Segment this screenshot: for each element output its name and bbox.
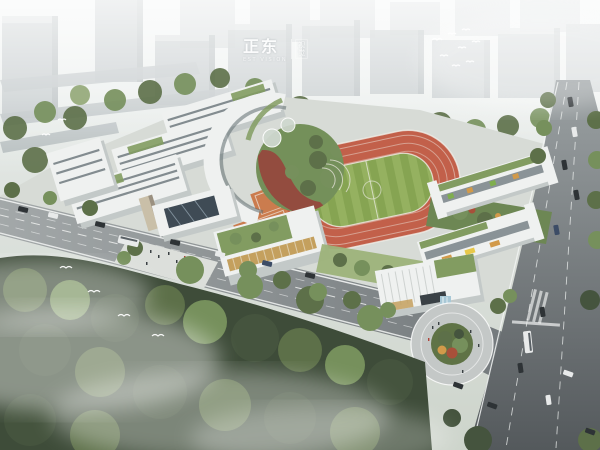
aerial-campus-rendering: 正东 EST VISION 视 觉	[0, 0, 600, 450]
watermark: 正东 EST VISION 视 觉	[243, 39, 308, 63]
watermark-divider	[291, 39, 292, 59]
garden-ring	[263, 129, 281, 147]
garden-ring	[281, 118, 295, 132]
watermark-side-text: 视 觉	[295, 39, 308, 59]
watermark-sub-text: EST VISION	[243, 57, 287, 63]
scene	[0, 0, 600, 450]
watermark-main-text: 正东	[243, 39, 287, 55]
